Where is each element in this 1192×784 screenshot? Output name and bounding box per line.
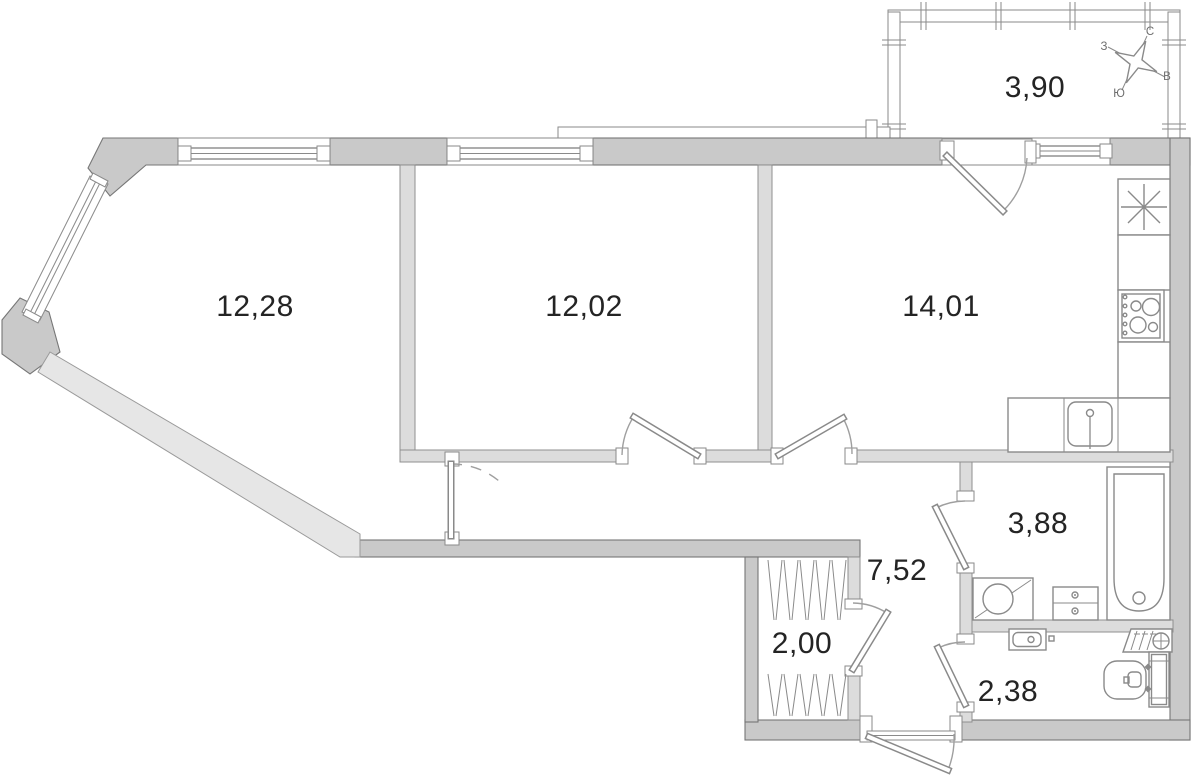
- kitchen-fixtures: [1008, 179, 1170, 452]
- room-area-wc: 2,38: [978, 675, 1038, 708]
- window-kitchen: [1028, 138, 1112, 165]
- balcony-slab-edge: [558, 127, 890, 138]
- wall-wardrobe-left: [745, 557, 758, 722]
- room-area-kitchen: 14,01: [902, 290, 980, 323]
- room-labels: 12,28 12,02 14,01 3,90 7,52 2,00 3,88 2,…: [216, 71, 1068, 708]
- balcony-structure: [882, 2, 1186, 138]
- wall-wardrobe-right-2: [848, 672, 860, 720]
- window-bedroom: [447, 138, 593, 165]
- compass-east-label: В: [1163, 71, 1171, 83]
- door-kitchen: [771, 418, 857, 464]
- wall-wardrobe-right-1: [848, 557, 860, 605]
- wall-diagonal: [38, 352, 360, 557]
- room-area-balcony: 3,90: [1005, 71, 1065, 104]
- wall-living-bedroom: [400, 165, 415, 450]
- window-living: [178, 138, 330, 165]
- room-area-hallway: 7,52: [867, 554, 927, 587]
- room-area-bathroom: 3,88: [1008, 507, 1068, 540]
- balcony-wall-top: [888, 10, 1180, 22]
- wall-top-right: [593, 138, 942, 165]
- wall-bottom-right: [952, 720, 1190, 740]
- floor-plan: С В Ю З 12,28 12,02 14,01 3,90 7,52 2,00…: [0, 0, 1192, 784]
- wardrobe-rail-top: [768, 560, 846, 620]
- wardrobe-rail-bottom: [768, 674, 846, 716]
- wall-right: [1170, 138, 1190, 740]
- kitchen-cabinet-2: [1118, 342, 1170, 398]
- stove-icon: [1118, 290, 1164, 342]
- wall-hall-top-1: [400, 450, 622, 462]
- radiator-icon: [1123, 629, 1172, 652]
- door-entrance: [860, 716, 962, 770]
- room-area-wardrobe: 2,00: [772, 627, 832, 660]
- wall-hall-bath-2: [960, 567, 972, 640]
- kitchen-counter: [1008, 398, 1170, 452]
- compass-west-label: З: [1101, 41, 1108, 53]
- compass-north-label: С: [1146, 26, 1154, 38]
- bathtub-icon: [1107, 467, 1170, 620]
- bathroom-fixtures: [973, 467, 1170, 620]
- door-bedroom: [616, 416, 706, 464]
- drawer-cabinet-icon: [1053, 587, 1098, 620]
- compass-south-label: Ю: [1113, 88, 1125, 100]
- door-living: [445, 452, 499, 545]
- room-area-bedroom: 12,02: [545, 290, 623, 323]
- door-bathroom: [936, 491, 974, 573]
- wall-bedroom-kitchen: [758, 165, 772, 450]
- door-balcony: [940, 138, 1036, 211]
- door-wc: [938, 634, 974, 712]
- washing-machine-icon: [973, 578, 1033, 620]
- wall-bottom-left: [355, 540, 860, 557]
- compass-star: [1105, 31, 1166, 92]
- compass-rose-icon: С В Ю З: [1101, 26, 1172, 100]
- facade-post: [866, 120, 877, 140]
- balcony-wall-left: [888, 12, 900, 138]
- room-area-living: 12,28: [216, 290, 294, 323]
- kitchen-cabinet-1: [1118, 235, 1170, 290]
- floor-plan-drawing: С В Ю З 12,28 12,02 14,01 3,90 7,52 2,00…: [0, 0, 1192, 784]
- window-bay: [22, 173, 108, 323]
- wall-hall-top-2: [700, 450, 777, 462]
- toilet-icon: [1104, 652, 1169, 707]
- wall-top-mid: [330, 138, 447, 165]
- wall-bottom-center: [745, 720, 868, 740]
- door-wardrobe: [845, 599, 887, 676]
